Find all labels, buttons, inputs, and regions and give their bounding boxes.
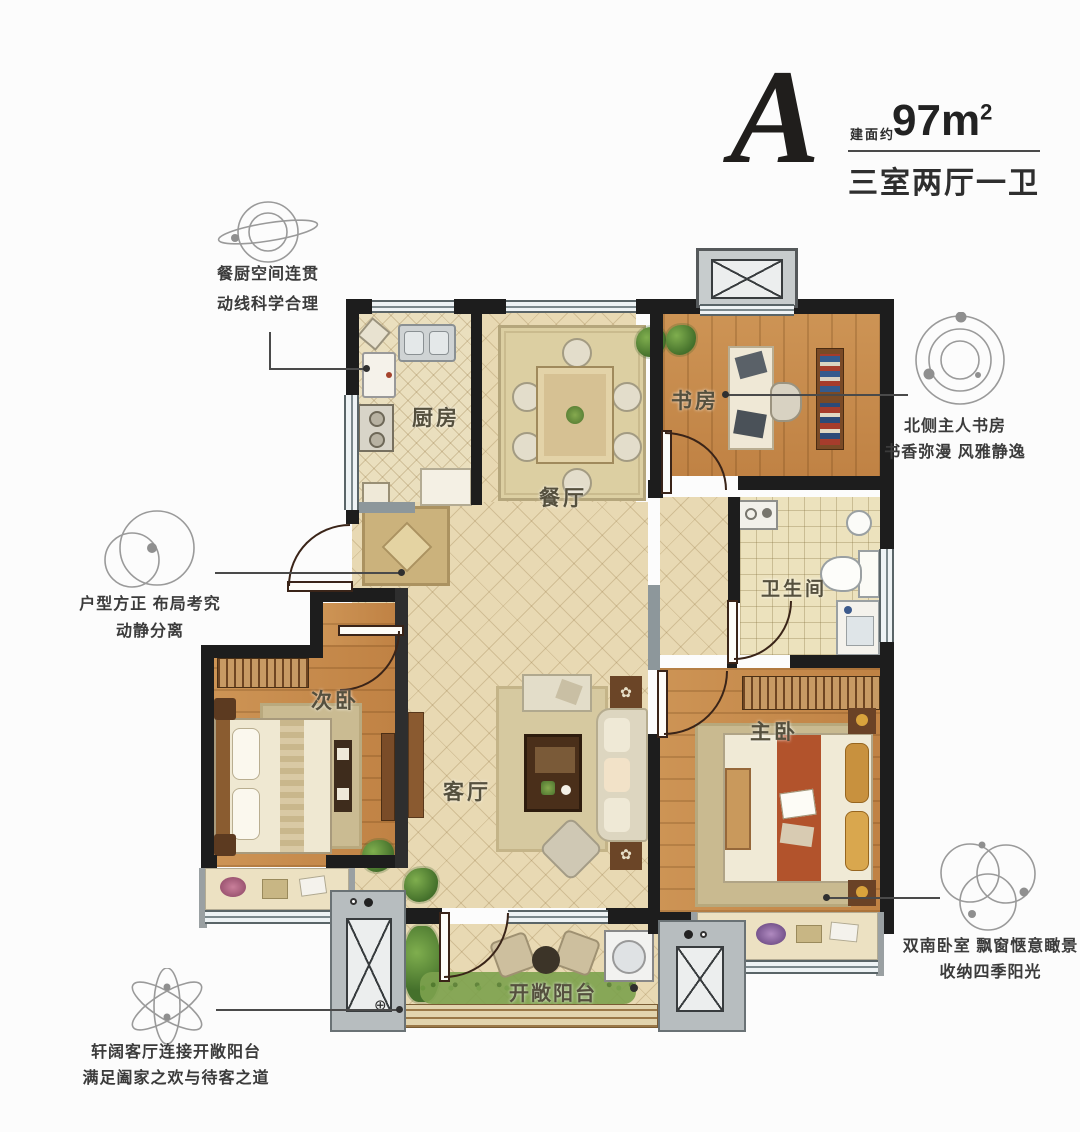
sofa-cushion-1 — [604, 718, 630, 752]
balcony-floor-drain — [630, 984, 638, 992]
bench-item-1 — [337, 748, 349, 760]
callout-bedrooms-line1: 双南卧室 飘窗惬意瞰景 — [888, 932, 1080, 956]
washer-knob-2 — [762, 508, 772, 518]
layout-description: 三室两厅一卫 — [848, 158, 1040, 202]
balcony-label: 开敞阳台 — [493, 977, 613, 1006]
bay2-tray — [262, 879, 288, 899]
vanity-basin — [846, 616, 874, 646]
coffee-table-cup — [561, 785, 571, 795]
bay2-book — [299, 875, 327, 896]
wall-study-south — [738, 476, 894, 490]
sink-basin-right — [429, 331, 449, 355]
platform-right-xbox — [676, 946, 724, 1012]
side-table-top: ✿ — [610, 676, 642, 708]
sink-basin-left — [404, 331, 424, 355]
dining-label: 餐厅 — [523, 482, 603, 512]
bed-tray — [779, 789, 816, 819]
leader-layout-h — [215, 572, 403, 574]
master-bedroom-label: 主卧 — [734, 716, 814, 746]
kitchen-west-window — [344, 395, 359, 510]
callout-balcony-line2: 满足阖家之欢与待客之道 — [66, 1064, 286, 1088]
wall-living-south-2 — [606, 908, 658, 924]
unit-type-letter: A — [730, 50, 820, 185]
living-label: 客厅 — [427, 776, 507, 806]
area-label: 建面约 — [850, 124, 895, 143]
vanity-accessory — [844, 606, 852, 614]
study-label: 书房 — [655, 385, 735, 415]
wall-top-4 — [788, 299, 894, 314]
leader-balcony-h — [216, 1009, 400, 1011]
burner-1 — [369, 411, 385, 427]
master-nightstand-bottom — [848, 880, 876, 906]
callout-layout-line1: 户型方正 布局考究 — [42, 590, 258, 614]
second-bedroom-bay-sill — [205, 868, 349, 910]
wall-living-east-lower — [648, 734, 660, 934]
master-wardrobe — [742, 676, 880, 710]
elevator-shaft — [696, 248, 798, 308]
lamp-top — [856, 714, 868, 726]
baym-flowers — [756, 923, 786, 945]
callout-layout-line2: 动静分离 — [42, 617, 258, 641]
callout-kitchen-line2: 动线科学合理 — [160, 290, 376, 314]
balcony-washer — [604, 930, 654, 982]
platform-left-dot-open — [350, 898, 357, 905]
second-bedroom-bay-window — [205, 910, 349, 924]
wall-top-2 — [454, 299, 506, 314]
leader-kitchen-v — [269, 332, 271, 370]
pillow-2 — [232, 788, 260, 840]
sofa — [596, 708, 648, 842]
dining-window — [506, 300, 636, 313]
leader-kitchen-h — [269, 368, 367, 370]
wall-second-bedroom-west — [201, 645, 214, 870]
wall-east-lower — [880, 642, 894, 934]
baym-tray — [796, 925, 822, 943]
living-balcony-window — [508, 910, 608, 924]
washer-knob-1 — [745, 508, 757, 520]
wall-master-north — [790, 655, 894, 668]
header-divider — [848, 150, 1040, 152]
callout-kitchen-line1: 餐厨空间连贯 — [160, 260, 376, 284]
sofa-cushion-3 — [604, 798, 630, 832]
platform-right-dot-solid — [684, 930, 693, 939]
nightstand-bottom — [214, 834, 236, 856]
washer-drum — [612, 940, 646, 974]
second-bedroom-wardrobe — [217, 658, 309, 688]
master-pillow-1 — [845, 743, 869, 803]
callout-study-line1: 北侧主人书房 — [855, 412, 1055, 436]
refrigerator — [362, 352, 396, 398]
dining-chair-right-1 — [612, 382, 642, 412]
atom-orbits-icon — [112, 968, 222, 1044]
leader-study-h — [726, 394, 908, 396]
sofa-cushion-2 — [604, 758, 630, 792]
wall-bathroom-west — [728, 497, 740, 603]
master-nightstand-top — [848, 708, 876, 734]
tv-console — [408, 712, 424, 818]
wall-kitchen-south — [359, 502, 415, 513]
bathroom-label: 卫生间 — [744, 574, 844, 601]
kitchen-sink — [398, 324, 456, 362]
callout-bedrooms-line2: 收纳四季阳光 — [888, 958, 1080, 982]
side-table-bottom: ✿ — [610, 838, 642, 870]
baym-book — [829, 922, 859, 943]
leader-master-h — [828, 897, 940, 899]
leader-layout-dot — [398, 569, 405, 576]
bench-pillow — [555, 679, 583, 705]
coffee-table-plant — [541, 781, 555, 795]
area-value: 97m2 — [892, 96, 992, 146]
nightstand-top — [214, 698, 236, 720]
kitchen-window — [372, 300, 454, 313]
laptop-bottom — [733, 410, 767, 439]
coffee-table — [524, 734, 582, 812]
books-lower — [820, 403, 840, 445]
coffee-table-tray — [535, 747, 575, 773]
pedestal-sink — [846, 510, 872, 536]
floor-plan-page: A 建面约 97m2 三室两厅一卫 — [0, 0, 1080, 1132]
desk-chair — [770, 382, 802, 422]
platform-right-dot-open — [700, 931, 707, 938]
pillow-1 — [232, 728, 260, 780]
elevator-lobby-window — [700, 304, 794, 316]
stove — [358, 404, 394, 452]
bathroom-vanity — [836, 600, 880, 656]
bench-item-2 — [337, 788, 349, 800]
bed-cloth — [780, 823, 814, 847]
fridge-handle — [386, 372, 392, 378]
bay2-flowers — [220, 877, 246, 897]
elevator-xbox — [711, 259, 783, 299]
burner-2 — [369, 432, 385, 448]
dining-centerpiece — [566, 406, 584, 424]
leader-balcony-dot — [396, 1006, 403, 1013]
triple-circles-icon — [938, 840, 1038, 932]
balcony-railing — [404, 1004, 658, 1028]
drain-symbol: ⊕ — [374, 998, 390, 1014]
kitchen-counter-cart — [420, 468, 472, 506]
leader-study-dot — [722, 391, 729, 398]
entry-rug — [362, 506, 450, 586]
bookshelf — [816, 348, 844, 450]
master-bench — [725, 768, 751, 850]
bed-blanket-stripe — [280, 720, 304, 852]
second-bedroom-bench — [334, 740, 352, 812]
books-upper — [820, 354, 840, 392]
wall-second-bedroom-north — [201, 645, 313, 658]
leader-master-dot — [823, 894, 830, 901]
callout-study-line2: 书香弥漫 风雅静逸 — [855, 438, 1055, 462]
platform-left-dot-solid — [364, 898, 373, 907]
wall-top-3 — [636, 299, 702, 314]
callout-balcony-line1: 轩阔客厅连接开敞阳台 — [66, 1038, 286, 1062]
bath-hallway-floor — [660, 497, 728, 655]
overlapping-circles-icon — [92, 505, 204, 601]
living-bench — [522, 674, 592, 712]
wall-living-east-upper — [648, 585, 660, 670]
area-number: 97m — [892, 96, 980, 145]
balcony-table — [532, 946, 560, 974]
equipment-platform-right — [658, 920, 746, 1032]
bathroom-washer — [738, 500, 778, 530]
kitchen-label: 厨房 — [396, 402, 476, 432]
bathroom-window — [879, 549, 894, 642]
entry-rug-medallion — [382, 522, 433, 573]
second-bedroom-tv-cabinet — [381, 733, 395, 821]
leader-kitchen-dot — [363, 365, 370, 372]
entry-door-arc — [288, 524, 350, 586]
wall-west-stub — [346, 510, 359, 524]
saturn-orbit-icon — [213, 196, 323, 268]
concentric-orbits-icon — [912, 312, 1008, 408]
bed-headboard — [216, 720, 230, 852]
master-pillow-2 — [845, 811, 869, 871]
area-superscript: 2 — [980, 99, 992, 124]
second-bedroom-label: 次卧 — [295, 685, 375, 715]
dining-chair-right-2 — [612, 432, 642, 462]
dining-chair-top — [562, 338, 592, 368]
wall-living-south-1 — [404, 908, 442, 924]
